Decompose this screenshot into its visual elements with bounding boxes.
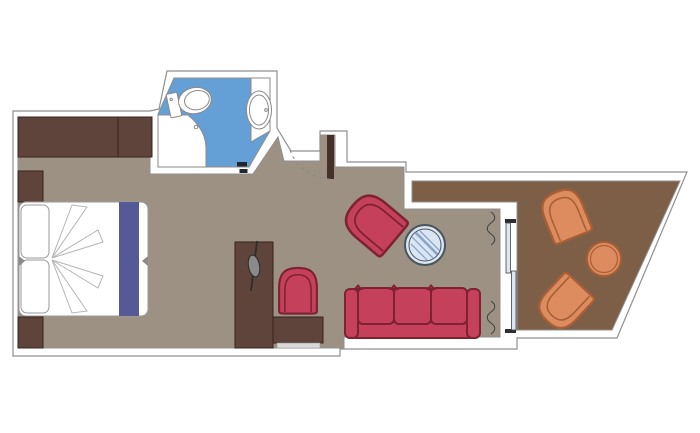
sofa-cushion-2 [394, 288, 431, 324]
pillow-top [21, 205, 49, 258]
bed-runner [119, 202, 139, 316]
bath-door-fitting [240, 169, 248, 173]
desk [273, 317, 323, 343]
sofa-arm-left [345, 289, 358, 338]
wardrobe [18, 117, 152, 157]
sliding-door-panel-2 [512, 271, 517, 330]
sliding-door-stop-top [505, 219, 516, 223]
bedside-table-top [18, 171, 43, 202]
bed [19, 202, 148, 316]
glass-table-top [405, 225, 445, 265]
toilet-button-icon [170, 98, 173, 101]
desk-chair [279, 268, 317, 314]
sofa [345, 286, 480, 339]
floor-plan [0, 0, 700, 433]
sofa-cushion-1 [358, 288, 394, 324]
floor-plan-canvas [0, 0, 700, 433]
bath-threshold-fitting [237, 162, 247, 167]
bedside-table-bottom [18, 317, 43, 348]
round-glass-table [405, 225, 445, 265]
sofa-arm-right [467, 289, 480, 338]
desk-drawer-strip [277, 343, 320, 348]
faucet-icon [265, 109, 268, 112]
shower-door-knob-icon [194, 125, 198, 129]
pillow-bottom [21, 260, 49, 313]
entry-door-leaf [327, 135, 334, 179]
balcony-table [587, 242, 621, 276]
sliding-door-panel-1 [506, 223, 511, 273]
sofa-cushion-3 [431, 288, 467, 324]
